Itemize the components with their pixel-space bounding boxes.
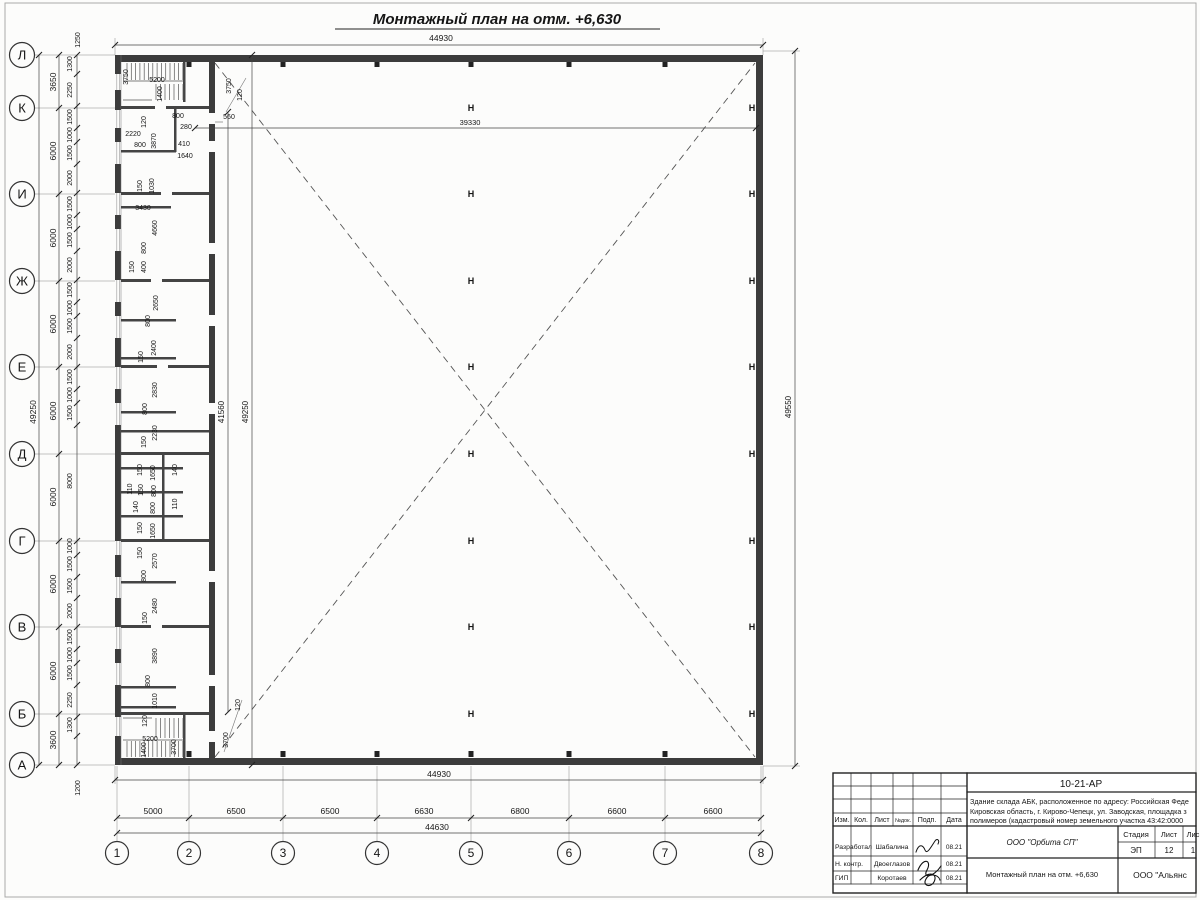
dimension-label: 6000 [48,661,58,680]
titleblock-col-podp: Подп. [918,817,937,824]
dimension-label: 8000 [67,473,74,489]
wall-column-squares [187,62,668,757]
dimension-label: 3650 [48,72,58,91]
dimension-label: 3890 [152,648,159,664]
dimension-label: 800 [145,315,152,327]
dimension-label: 1000 [67,214,74,230]
column-marker-H: Н [749,449,756,459]
dimension-label: 6500 [227,806,246,816]
dimension-label: 1300 [67,56,74,72]
dimension-label: 3870 [151,133,158,149]
titleblock-date-2: 08.21 [946,861,963,868]
dimension-label: 1500 [67,578,74,594]
dimension-label: 3700 [171,739,178,755]
dimension-label: 6000 [48,314,58,333]
axis-label-row: Д [18,447,27,462]
dimension-label: 150 [137,464,144,476]
dimension-label: 4660 [152,220,159,236]
dimension-label: 2000 [67,603,74,619]
dimension-label: 120 [142,715,149,727]
dimension-label: 110 [127,483,134,494]
titleblock-sheet-value: 12 [1165,846,1174,855]
dimension-label: 41560 [217,400,226,423]
column-marker-H: Н [749,536,756,546]
dimension-label: 110 [172,498,179,509]
dimension-label: 1500 [67,145,74,161]
dimension-label: 1500 [67,109,74,125]
dimension-label: 1500 [67,282,74,298]
dimension-label: 3600 [48,730,58,749]
dimension-label: 800 [142,403,149,415]
dimension-label: 6600 [704,806,723,816]
titleblock-desc-line1: Здание склада АБК, расположенное по адре… [970,797,1189,806]
axis-label-row: Г [18,534,25,549]
titleblock-col-ndok: №док. [895,818,912,824]
axis-label-row: К [18,101,26,116]
dimension-label: 5000 [144,806,163,816]
dimension-label: 1010 [152,693,159,709]
dimension-label: 3750 [226,78,233,94]
dimension-label: 3700 [223,732,230,748]
dimension-label: 2570 [152,553,159,569]
dimension-label: 2650 [153,295,160,311]
titleblock-name-2: Двоеглазов [874,861,911,868]
floor-plan-svg: НННННННННННННННН449304493044630500065006… [0,0,1200,900]
dimension-label: 44930 [427,769,451,779]
drawing-header: Монтажный план на отм. +6,630 [335,11,660,29]
dimension-label: 2000 [67,344,74,360]
dimension-label: 800 [172,113,184,120]
titleblock-col-list: Лист [874,817,890,824]
column-marker-H: Н [468,449,475,459]
dimension-label: 800 [151,485,158,497]
dimension-label: 2480 [152,598,159,614]
dimension-label: 1000 [67,647,74,663]
titleblock-code: 10-21-АР [1060,779,1103,790]
dimension-label: 2230 [152,425,159,441]
titleblock-date-3: 08.21 [946,875,963,882]
axis-label-row: Б [18,707,27,722]
axis-label-row: Ж [16,274,28,289]
titleblock-date-1: 08.21 [946,844,963,851]
dimension-label: 400 [141,261,148,273]
column-marker-H: Н [468,189,475,199]
axis-markers-bottom: 12345678 [106,842,773,865]
axis-label-col: 3 [280,846,287,860]
dimension-label: 1500 [67,665,74,681]
dimension-label: 150 [137,522,144,534]
titleblock-desc-line3: полимеров (кадастровый номер земельного … [970,816,1183,825]
titleblock-stage-value: ЭП [1130,846,1142,855]
titleblock-doc-title: Монтажный план на отм. +6,630 [986,870,1098,879]
dimension-label: 1000 [67,387,74,403]
dimension-label: 150 [142,612,149,624]
dimension-label: 120 [141,116,148,128]
titleblock-role-1: Разработал [835,843,872,851]
axis-label-col: 8 [758,846,765,860]
axis-label-col: 5 [468,846,475,860]
dimension-label: 1500 [67,369,74,385]
column-marker-H: Н [749,276,756,286]
axis-label-row: Л [18,48,27,63]
dimension-label: 2220 [125,131,141,138]
dimension-label: 6800 [511,806,530,816]
dimension-label: 150 [138,351,145,363]
dimension-label: 2000 [67,170,74,186]
dimension-label: 1000 [67,300,74,316]
dimension-label: 49550 [784,395,793,418]
dimension-label: 6000 [48,574,58,593]
title-block: 10-21-АР Здание склада АБК, расположенно… [833,773,1200,893]
plan-generated-layer: НННННННННННННННН449304493044630500065006… [10,32,801,864]
titleblock-role-2: Н. контр. [835,861,863,868]
dimension-label: 1200 [75,780,82,796]
axis-label-col: 1 [114,846,121,860]
column-markers: НННННННННННННННН [468,103,756,719]
dimension-label: 560 [223,114,235,121]
dimension-label: 2000 [67,257,74,273]
dimension-label: 6600 [608,806,627,816]
dimension-label: 39330 [460,118,481,127]
dimension-label: 49250 [28,400,38,424]
dimension-label: 3750 [123,69,130,85]
titleblock-sheets-value: 1 [1191,846,1196,855]
axis-label-col: 4 [374,846,381,860]
witness-lines [35,38,800,842]
dimension-label: 1500 [67,405,74,421]
titleblock-org2: ООО "Альянс [1133,870,1188,880]
dimension-label: 1250 [75,32,82,48]
axis-label-col: 6 [566,846,573,860]
dimension-label: 49250 [241,400,250,423]
axis-label-row: И [17,187,26,202]
dimension-label: 1400 [157,86,164,102]
titleblock-name-3: Коротаев [877,875,907,882]
dimension-label: 1650 [150,465,157,481]
dimension-label: 2250 [67,82,74,98]
drawing-sheet: НННННННННННННННН449304493044630500065006… [0,0,1200,900]
dimension-label: 120 [237,89,244,101]
column-marker-H: Н [468,622,475,632]
dimension-label: 44630 [425,822,449,832]
dimension-label: 5200 [149,77,165,84]
axis-label-col: 7 [662,846,669,860]
column-marker-H: Н [749,709,756,719]
dimension-label: 800 [134,142,146,149]
titleblock-stage-header: Стадия [1123,830,1149,839]
titleblock-name-1: Шабалина [876,843,909,851]
dimension-label: 150 [129,261,136,273]
dimension-label: 800 [141,570,148,582]
dimension-label: 6000 [48,487,58,506]
dimension-label: 150 [138,484,145,496]
dimension-label: 1300 [67,717,74,733]
column-marker-H: Н [468,709,475,719]
axis-label-row: Е [18,360,27,375]
dimension-label: 1640 [177,153,193,160]
dimension-label: 150 [137,547,144,559]
dimension-label: 2250 [67,692,74,708]
dimension-label: 1000 [67,538,74,554]
dimension-label: 6000 [48,228,58,247]
titleblock-col-izm: Изм. [835,817,850,824]
dimension-label: 1500 [67,196,74,212]
column-marker-H: Н [468,103,475,113]
column-marker-H: Н [749,362,756,372]
dimension-label: 800 [145,675,152,687]
drawing-title: Монтажный план на отм. +6,630 [373,11,622,28]
bracing-x [215,63,755,757]
dimension-label: 44930 [429,33,453,43]
dimension-label: 6000 [48,141,58,160]
titleblock-desc-line2: Кировская область, г. Кирово-Чепецк, ул.… [970,807,1187,816]
dimension-label: 410 [178,141,190,148]
axis-label-col: 2 [186,846,193,860]
column-marker-H: Н [749,103,756,113]
dimension-label: 1500 [67,556,74,572]
column-marker-H: Н [468,536,475,546]
dimension-label: 140 [172,464,179,476]
titleblock-role-3: ГИП [835,875,849,882]
column-marker-H: Н [749,189,756,199]
dimension-label: 6500 [321,806,340,816]
column-marker-H: Н [468,362,475,372]
dimension-label: 280 [180,124,192,131]
dimension-lines [36,42,798,836]
dimension-label: 1650 [150,523,157,539]
dimension-label: 150 [137,180,144,192]
left-wing-partitions [121,62,209,758]
dimension-label: 150 [141,436,148,448]
dimension-label: 2830 [152,382,159,398]
titleblock-sheet-header: Лист [1161,830,1178,839]
inner-wall [121,55,215,765]
dimension-label: 140 [133,501,140,513]
dimension-label: 1030 [149,178,156,194]
dimension-label: 1500 [67,318,74,334]
dimension-label: 6000 [48,401,58,420]
axis-label-row: В [18,620,27,635]
dimension-label: 1500 [67,629,74,645]
dimension-label: 1400 [141,742,148,758]
dimension-label: 6630 [415,806,434,816]
axis-label-row: А [18,758,27,773]
titleblock-org: ООО "Орбита СП" [1006,838,1078,847]
dimension-label: 1500 [67,232,74,248]
dimension-label: 800 [150,502,157,514]
dimension-label: 2400 [151,340,158,356]
dimension-label: 120 [235,699,242,711]
column-marker-H: Н [749,622,756,632]
column-marker-H: Н [468,276,475,286]
titleblock-col-data: Дата [946,817,962,824]
dimension-label: 3430 [135,205,151,212]
titleblock-sheets-header: Лис [1187,830,1200,839]
dimension-label: 800 [141,242,148,254]
dimension-label: 1000 [67,127,74,143]
titleblock-col-kol: Кол. [854,817,868,824]
dimension-label: 5200 [142,736,158,743]
